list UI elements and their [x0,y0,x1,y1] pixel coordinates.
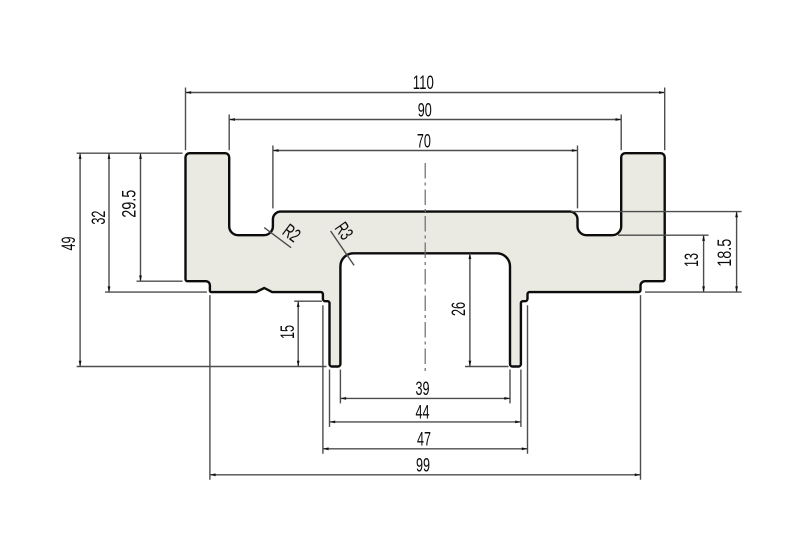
svg-text:18.5: 18.5 [714,239,736,267]
svg-text:39: 39 [416,378,430,400]
svg-text:44: 44 [416,402,430,424]
svg-text:110: 110 [413,72,434,94]
svg-text:32: 32 [88,211,110,225]
svg-text:15: 15 [277,325,299,339]
svg-text:49: 49 [58,237,80,251]
svg-text:29.5: 29.5 [119,190,141,218]
svg-text:13: 13 [681,253,703,267]
svg-text:26: 26 [448,302,470,316]
svg-text:90: 90 [418,100,432,122]
svg-text:99: 99 [416,455,430,477]
svg-text:47: 47 [417,429,431,451]
svg-text:70: 70 [417,131,431,153]
